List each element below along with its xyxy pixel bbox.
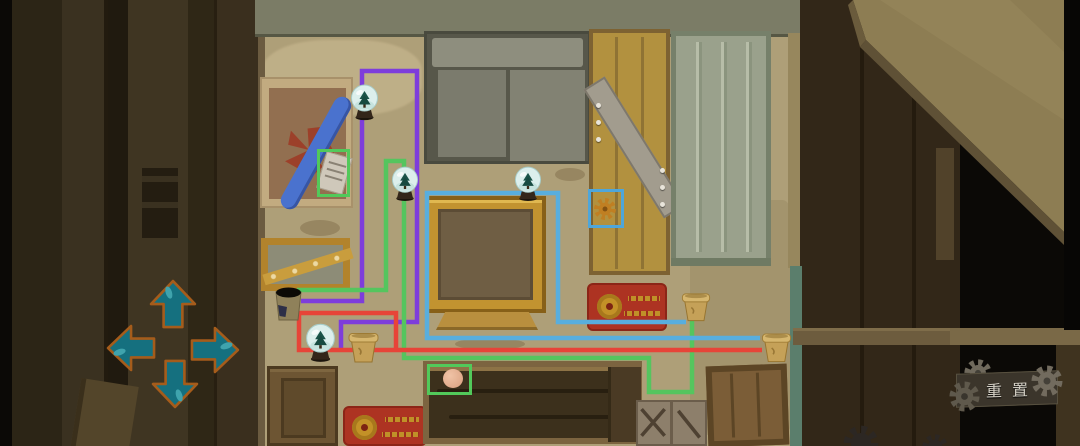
snow-globe-top-left[interactable]	[350, 84, 379, 121]
gear-icon	[921, 433, 949, 446]
game-screen: 重置	[0, 0, 1080, 446]
gear-icon	[842, 424, 880, 446]
gear-icon	[1030, 363, 1064, 399]
reset-button-label: 重置	[976, 376, 1038, 402]
peach-highlight-box[interactable]	[427, 364, 472, 395]
tan-pot-right-lower[interactable]	[761, 330, 792, 365]
gear-highlight-box[interactable]	[588, 189, 624, 228]
gear-icon	[948, 380, 981, 413]
snow-globe-shelf[interactable]	[514, 166, 542, 202]
snow-globe-mid-left[interactable]	[391, 166, 419, 202]
note-highlight-box[interactable]	[317, 149, 350, 197]
snow-globe-bottom-left[interactable]	[305, 323, 336, 363]
dpad-up-button[interactable]	[150, 280, 196, 328]
tan-pot-right-upper[interactable]	[681, 291, 711, 323]
tan-pot-left[interactable]	[347, 331, 380, 364]
dpad-left-button[interactable]	[107, 325, 155, 371]
dark-pot[interactable]	[273, 283, 304, 324]
dpad-right-button[interactable]	[191, 327, 239, 373]
